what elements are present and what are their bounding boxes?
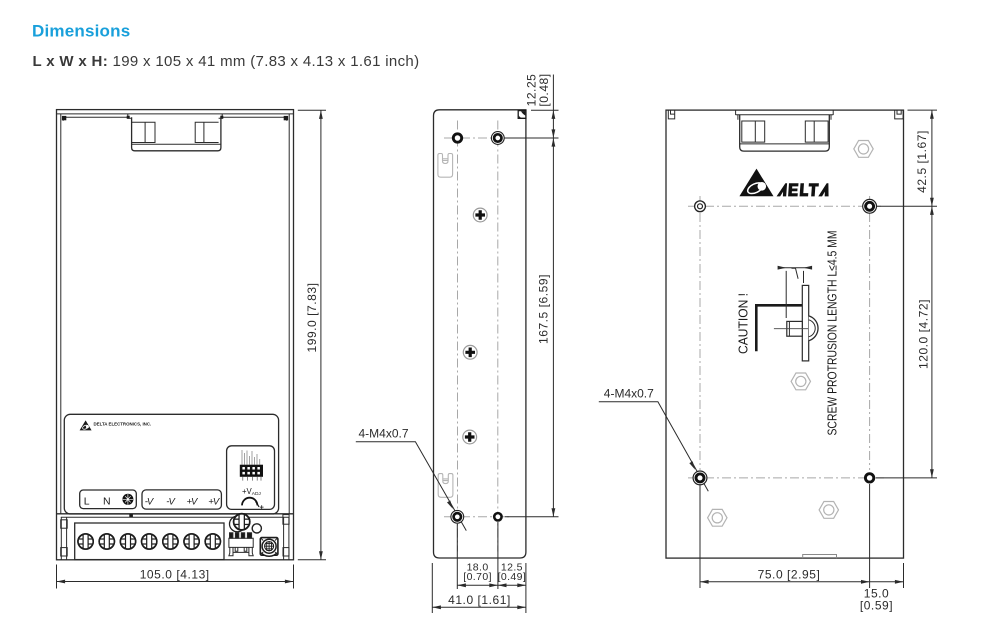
svg-text:-V: -V [145, 496, 155, 507]
svg-text:167.5 [6.59]: 167.5 [6.59] [537, 274, 551, 344]
svg-text:4-M4x0.7: 4-M4x0.7 [359, 427, 409, 441]
svg-text:[0.59]: [0.59] [860, 599, 893, 613]
svg-text:L x W x H: 199 x 105 x 41 mm (: L x W x H: 199 x 105 x 41 mm (7.83 x 4.1… [33, 53, 420, 70]
svg-text:L: L [84, 496, 90, 508]
svg-text:105.0 [4.13]: 105.0 [4.13] [140, 567, 210, 581]
svg-text:199.0 [7.83]: 199.0 [7.83] [305, 283, 319, 353]
svg-text:42.5 [1.67]: 42.5 [1.67] [915, 130, 929, 193]
svg-text:+V: +V [187, 496, 200, 507]
svg-text:41.0 [1.61]: 41.0 [1.61] [448, 593, 511, 607]
svg-text:[0.49]: [0.49] [498, 571, 527, 583]
svg-text:N: N [103, 496, 111, 508]
svg-text:CAUTION !: CAUTION ! [736, 293, 751, 354]
svg-text:Dimensions: Dimensions [32, 22, 130, 41]
svg-text:DELTA ELECTRONICS, INC.: DELTA ELECTRONICS, INC. [94, 422, 152, 427]
svg-text:SCREW PROTRUSION LENGTH L≤4.5: SCREW PROTRUSION LENGTH L≤4.5 MM [826, 231, 840, 436]
svg-text:+: + [260, 503, 265, 512]
svg-text:+VADJ: +VADJ [242, 487, 261, 497]
svg-text:[0.70]: [0.70] [463, 571, 492, 583]
svg-text:120.0 [4.72]: 120.0 [4.72] [916, 299, 930, 369]
svg-text:75.0 [2.95]: 75.0 [2.95] [758, 567, 821, 581]
svg-text:4-M4x0.7: 4-M4x0.7 [604, 387, 654, 401]
svg-text:[0.48]: [0.48] [537, 73, 551, 106]
svg-text:+V: +V [208, 496, 221, 507]
svg-text:-V: -V [166, 496, 176, 507]
